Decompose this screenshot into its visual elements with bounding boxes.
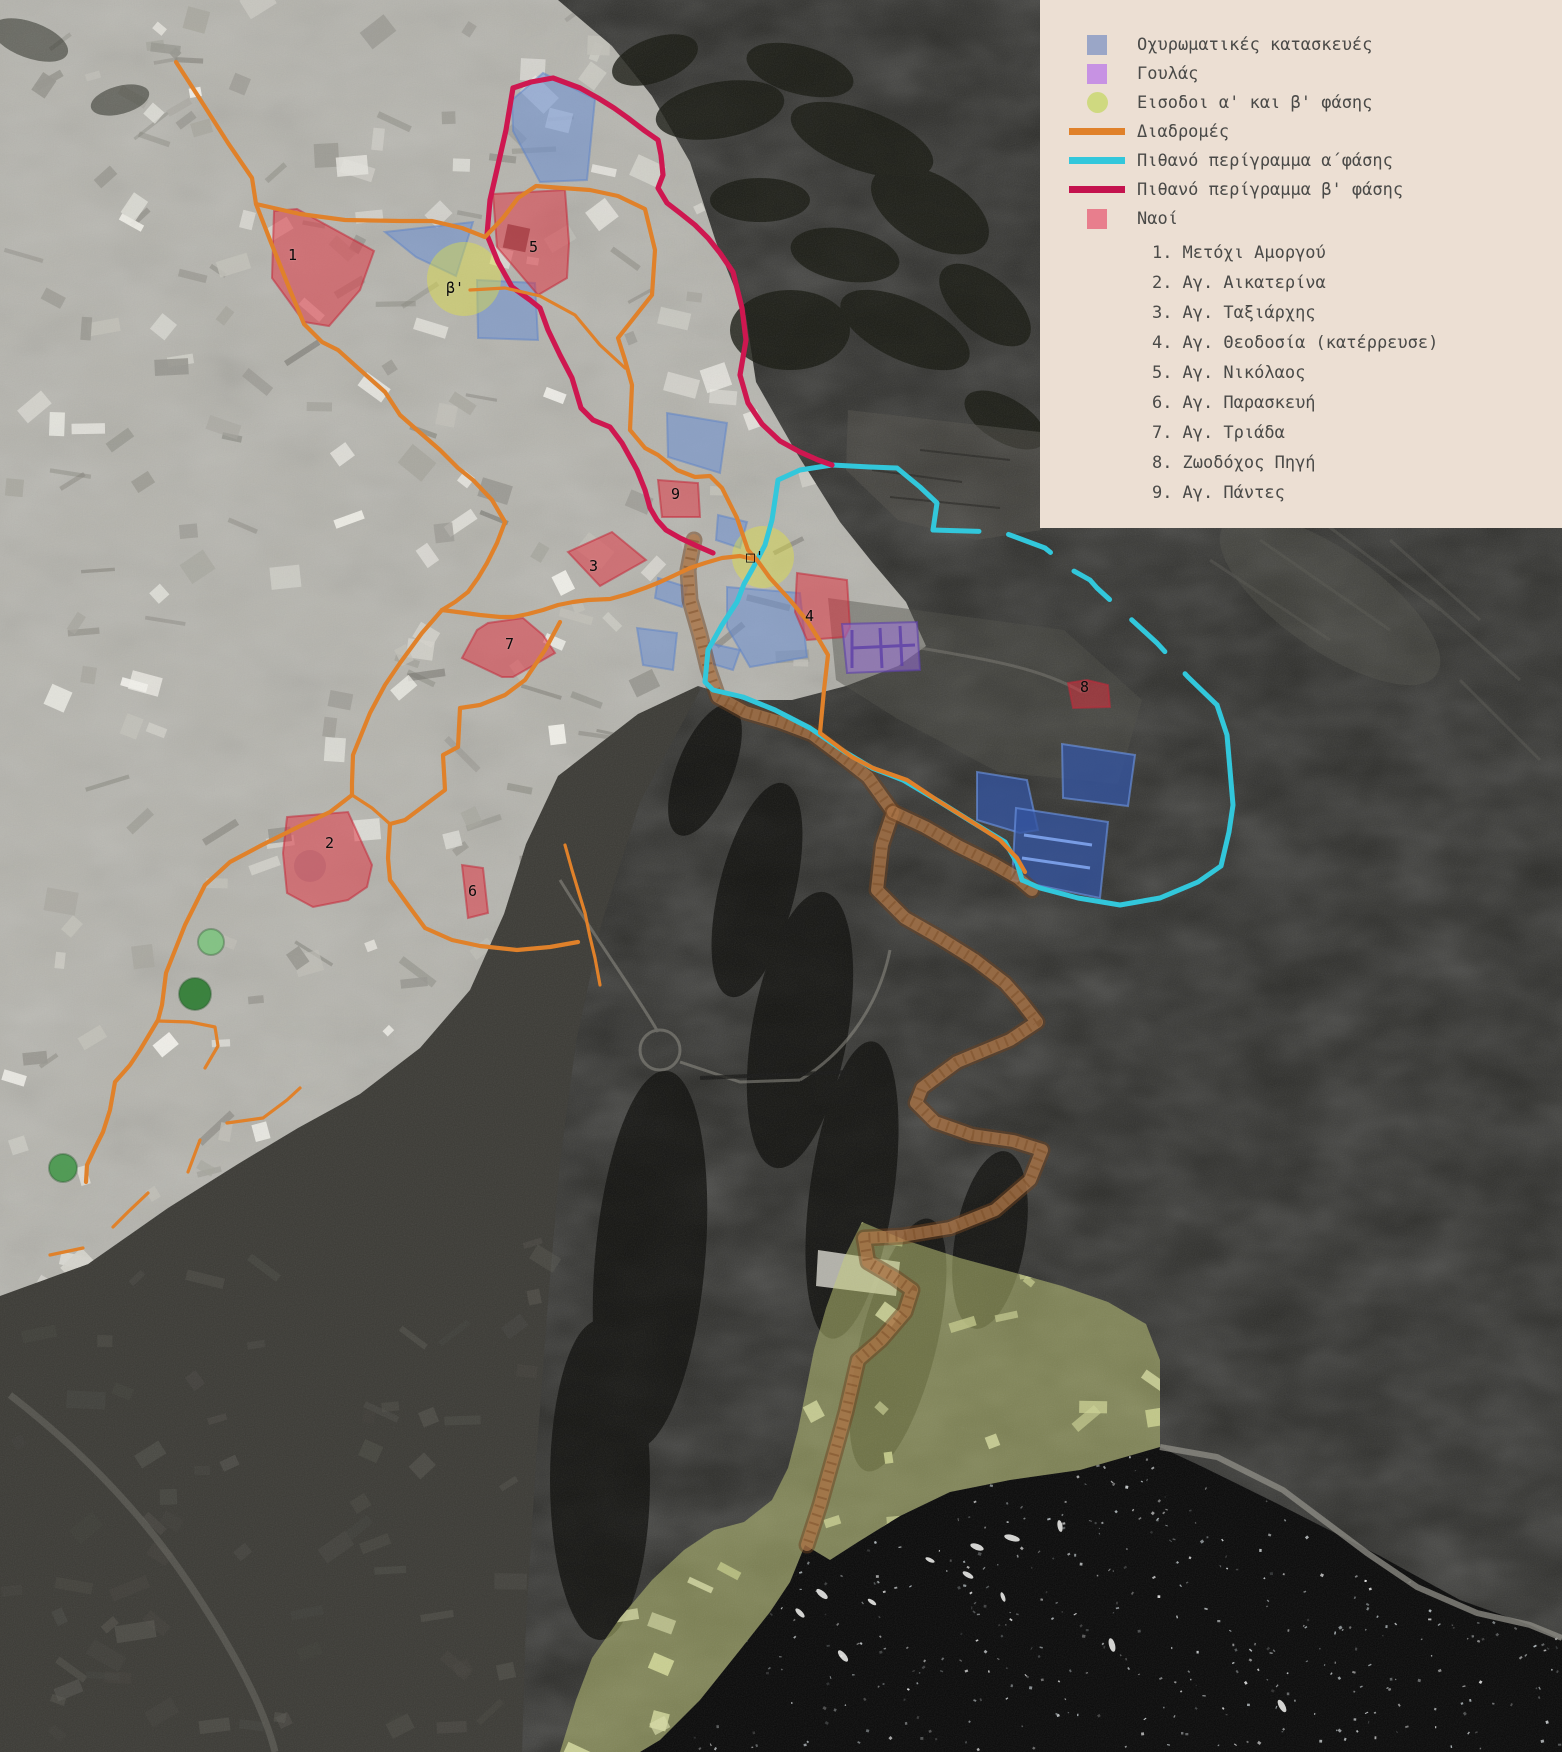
- church-name: Αγ. Παρασκευή: [1182, 393, 1315, 413]
- map-marker-label: 4: [805, 608, 814, 625]
- legend-item: Ναοί: [1040, 204, 1562, 233]
- legend-item: Πιθανό περίγραμμα β' φάσης: [1040, 175, 1562, 204]
- legend-item-label: Ναοί: [1137, 209, 1178, 229]
- map-marker-label: 2: [325, 835, 334, 852]
- legend-swatch-box: [1069, 35, 1125, 55]
- legend-church-item: 5.Αγ. Νικόλαος: [1040, 358, 1562, 388]
- map-marker-label: 3: [589, 558, 598, 575]
- legend-item-label: Εισοδοι α' και β' φάσης: [1137, 93, 1372, 113]
- legend-item: Γουλάς: [1040, 59, 1562, 88]
- legend-swatch-icon: [1087, 35, 1107, 55]
- map-marker-label: 6: [468, 883, 477, 900]
- church-number: 6.: [1152, 393, 1172, 413]
- church-number: 9.: [1152, 483, 1172, 503]
- church-name: Αγ. Τριάδα: [1182, 423, 1284, 443]
- legend-item: Εισοδοι α' και β' φάσης: [1040, 88, 1562, 117]
- map-marker-label: 7: [505, 636, 514, 653]
- legend-church-item: 8.Ζωοδόχος Πηγή: [1040, 448, 1562, 478]
- legend-item-label: Πιθανό περίγραμμα α΄φάσης: [1137, 151, 1393, 171]
- legend-church-item: 2.Αγ. Αικατερίνα: [1040, 268, 1562, 298]
- legend-swatch-icon: [1087, 64, 1107, 84]
- legend-swatch-box: [1069, 64, 1125, 84]
- legend-swatch-icon: [1069, 186, 1125, 193]
- legend-swatch-box: [1069, 92, 1125, 113]
- legend-item-label: Διαδρομές: [1137, 122, 1229, 142]
- map-marker-label: β': [446, 280, 464, 297]
- legend-swatch-icon: [1069, 128, 1125, 135]
- legend-items: Οχυρωματικές κατασκευές Γουλάς Εισοδοι α…: [1040, 30, 1562, 233]
- legend-item-label: Πιθανό περίγραμμα β' φάσης: [1137, 180, 1403, 200]
- legend-item-label: Οχυρωματικές κατασκευές: [1137, 35, 1372, 55]
- legend-church-list: 1.Μετόχι Αμοργού 2.Αγ. Αικατερίνα 3.Αγ. …: [1040, 238, 1562, 508]
- church-name: Αγ. Ταξιάρχης: [1182, 303, 1315, 323]
- legend-swatch-icon: [1069, 157, 1125, 164]
- legend-swatch-box: [1069, 186, 1125, 193]
- church-number: 5.: [1152, 363, 1172, 383]
- legend-item: Διαδρομές: [1040, 117, 1562, 146]
- legend-swatch-box: [1069, 157, 1125, 164]
- map-marker-label: 1: [288, 247, 297, 264]
- map-marker-label: 9: [671, 486, 680, 503]
- map-marker-label: 8: [1080, 679, 1089, 696]
- church-name: Ζωοδόχος Πηγή: [1182, 453, 1315, 473]
- aerial-map-figure: 1 2 3 4 5 6 7 8 9 β' □' Οχυρωματικές κατ…: [0, 0, 1562, 1752]
- legend-church-item: 7.Αγ. Τριάδα: [1040, 418, 1562, 448]
- legend-church-item: 4.Αγ. Θεοδοσία (κατέρρευσε): [1040, 328, 1562, 358]
- church-number: 8.: [1152, 453, 1172, 473]
- legend-swatch-icon: [1087, 209, 1107, 229]
- church-name: Μετόχι Αμοργού: [1182, 243, 1325, 263]
- legend-swatch-box: [1069, 209, 1125, 229]
- goulas-polygon: [842, 622, 920, 673]
- church-number: 1.: [1152, 243, 1172, 263]
- legend-item-label: Γουλάς: [1137, 64, 1198, 84]
- legend-item: Οχυρωματικές κατασκευές: [1040, 30, 1562, 59]
- legend-swatch-icon: [1087, 92, 1108, 113]
- church-name: Αγ. Αικατερίνα: [1182, 273, 1325, 293]
- church-name: Αγ. Θεοδοσία (κατέρρευσε): [1182, 333, 1438, 353]
- map-marker-label: 5: [529, 239, 538, 256]
- legend-church-item: 6.Αγ. Παρασκευή: [1040, 388, 1562, 418]
- legend-church-item: 1.Μετόχι Αμοργού: [1040, 238, 1562, 268]
- legend-church-item: 3.Αγ. Ταξιάρχης: [1040, 298, 1562, 328]
- church-number: 2.: [1152, 273, 1172, 293]
- church-name: Αγ. Πάντες: [1182, 483, 1284, 503]
- church-number: 4.: [1152, 333, 1172, 353]
- legend-swatch-box: [1069, 128, 1125, 135]
- church-name: Αγ. Νικόλαος: [1182, 363, 1305, 383]
- church-number: 3.: [1152, 303, 1172, 323]
- map-marker-label: □': [746, 549, 764, 566]
- legend-item: Πιθανό περίγραμμα α΄φάσης: [1040, 146, 1562, 175]
- legend-panel: Οχυρωματικές κατασκευές Γουλάς Εισοδοι α…: [1040, 0, 1562, 528]
- church-number: 7.: [1152, 423, 1172, 443]
- legend-church-item: 9.Αγ. Πάντες: [1040, 478, 1562, 508]
